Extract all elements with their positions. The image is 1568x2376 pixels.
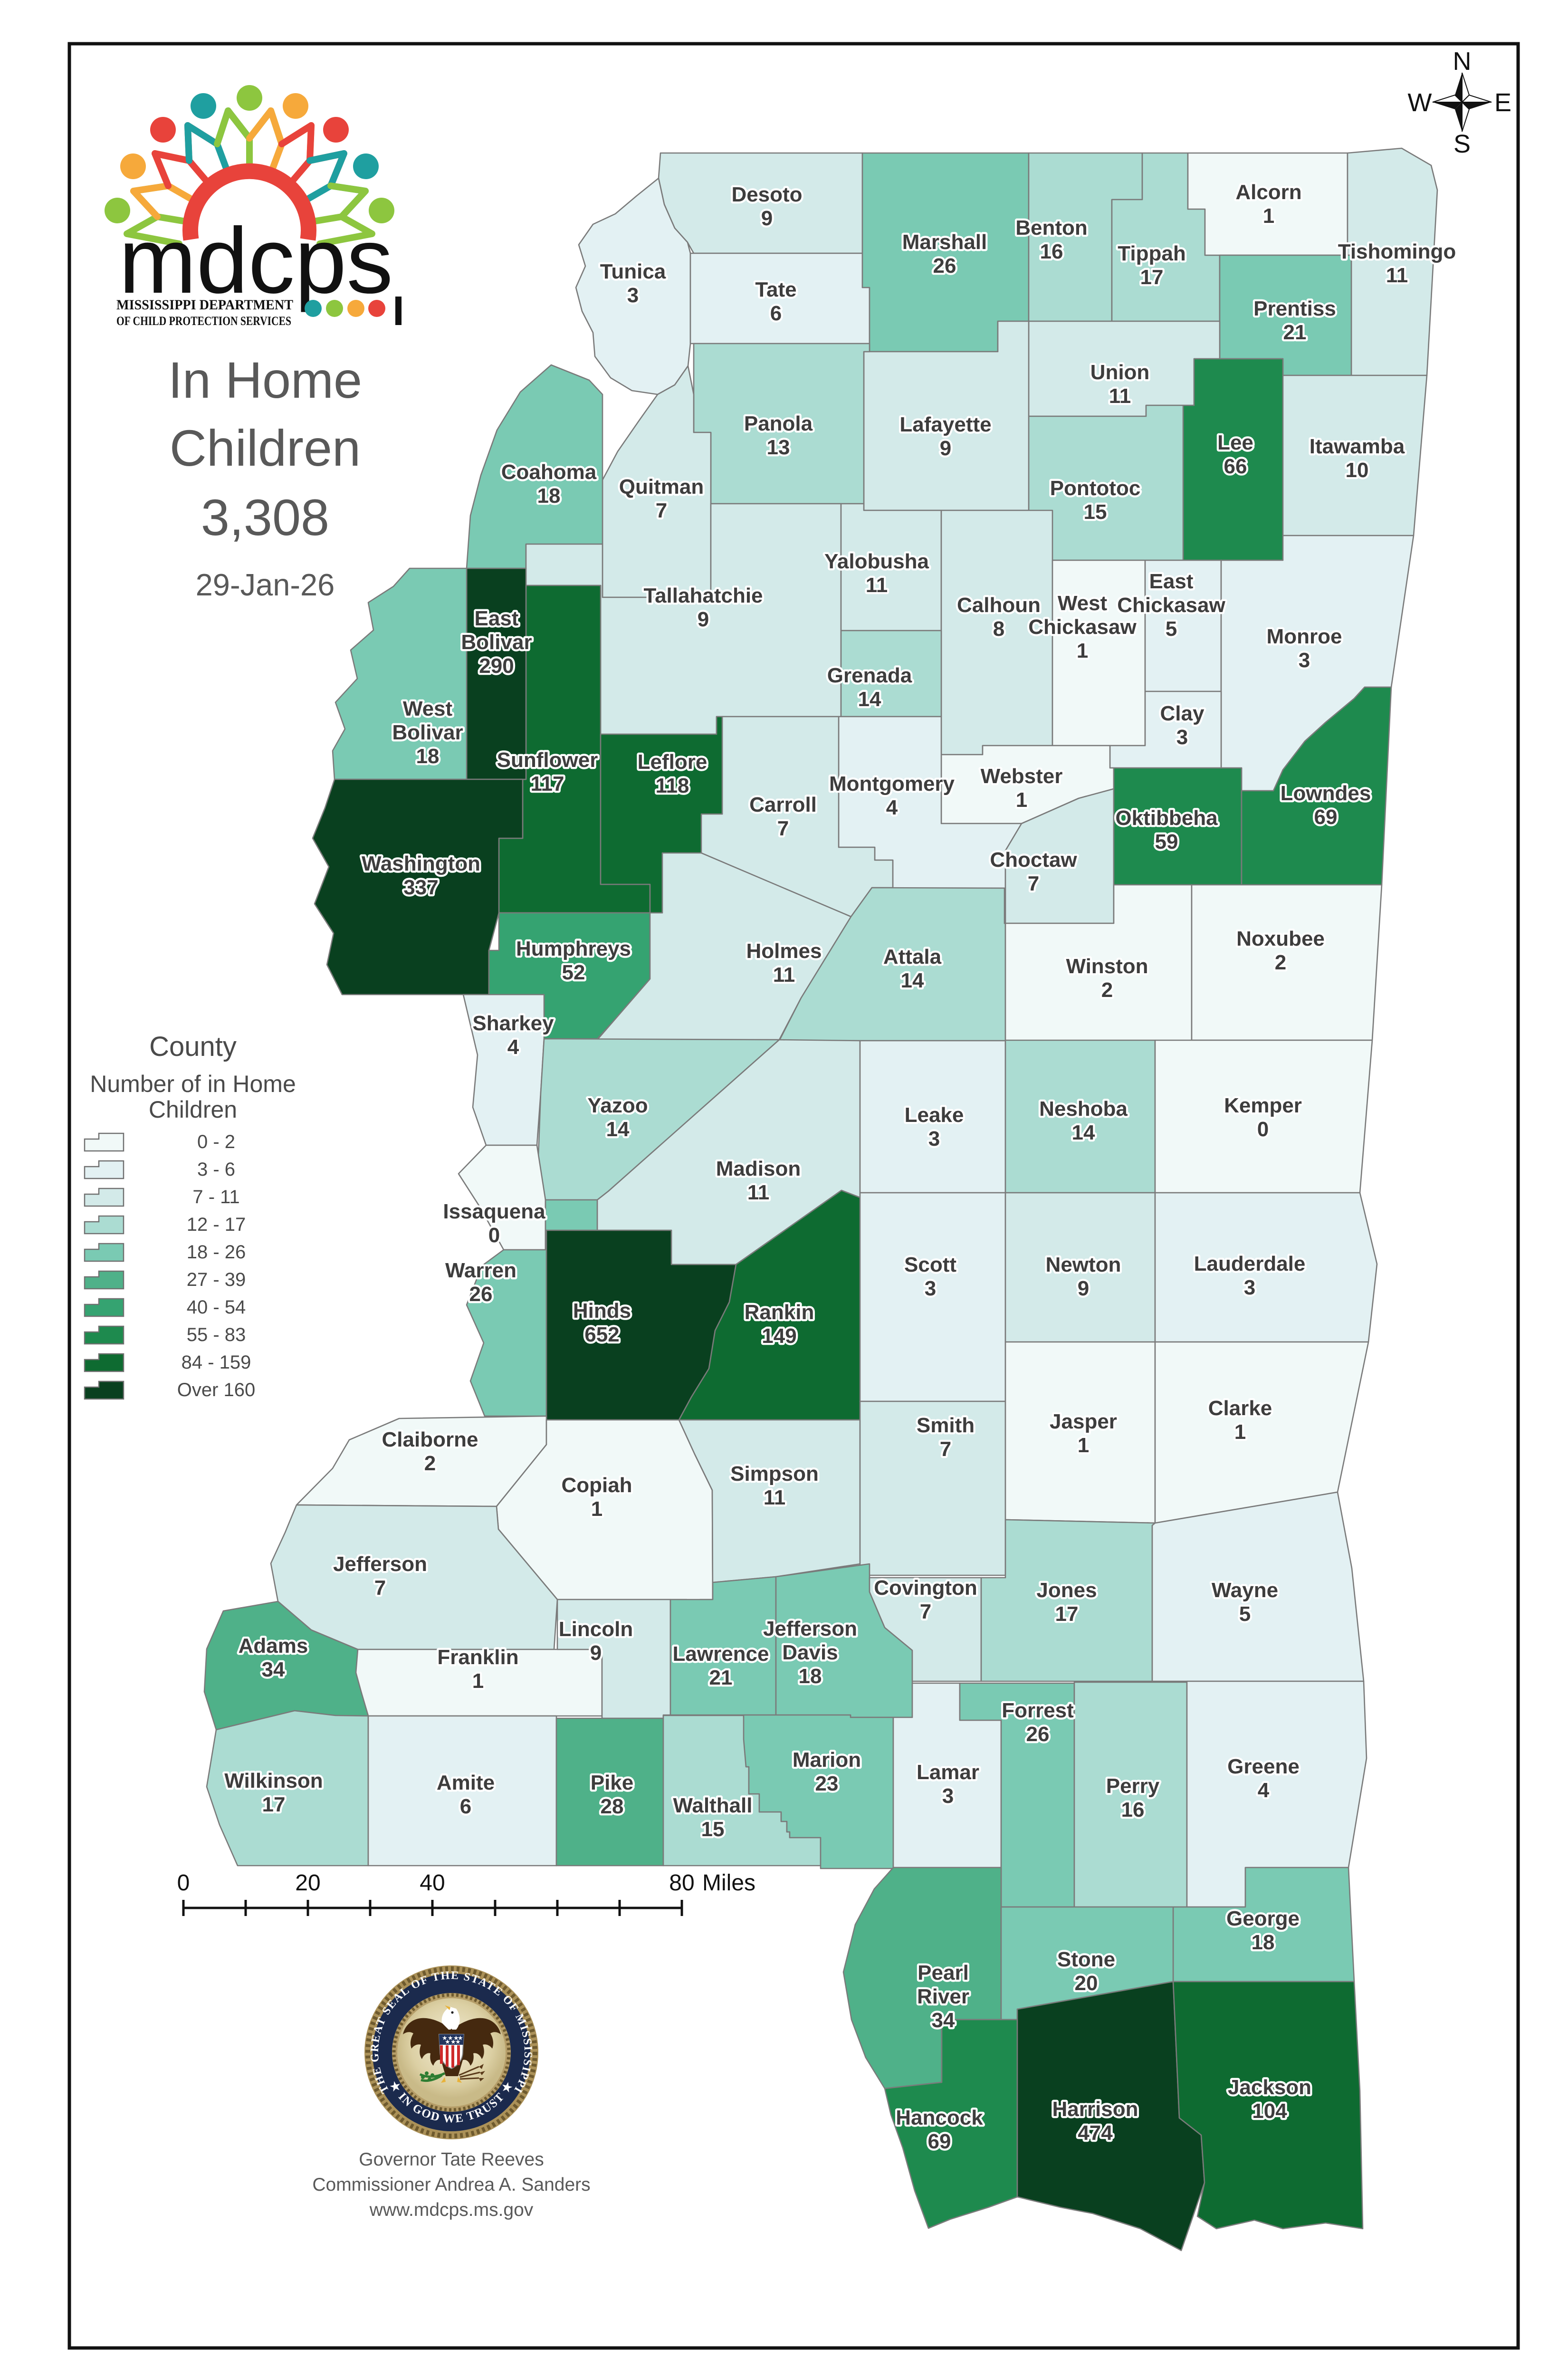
svg-text:Humphreys: Humphreys [516, 937, 631, 960]
svg-text:E: E [1494, 88, 1511, 117]
svg-text:4: 4 [507, 1035, 519, 1059]
svg-text:28: 28 [601, 1795, 624, 1818]
svg-text:18: 18 [416, 745, 440, 768]
svg-text:3: 3 [1299, 649, 1310, 672]
svg-text:Neshoba: Neshoba [1039, 1097, 1128, 1121]
svg-text:Simpson: Simpson [730, 1462, 819, 1485]
svg-text:Lee: Lee [1217, 431, 1253, 454]
svg-text:Covington: Covington [874, 1576, 977, 1600]
svg-text:Alcorn: Alcorn [1235, 181, 1301, 204]
svg-text:18: 18 [537, 484, 561, 508]
svg-text:17: 17 [1140, 266, 1164, 289]
svg-text:Madison: Madison [716, 1157, 801, 1180]
svg-text:Stone: Stone [1057, 1948, 1115, 1971]
svg-text:County: County [149, 1031, 237, 1062]
svg-text:Chickasaw: Chickasaw [1117, 594, 1225, 617]
svg-text:117: 117 [531, 772, 564, 795]
svg-text:Marshall: Marshall [902, 230, 987, 254]
svg-text:West: West [403, 697, 453, 720]
svg-text:3: 3 [1176, 726, 1188, 749]
svg-text:Grenada: Grenada [827, 664, 912, 687]
svg-text:Pontotoc: Pontotoc [1050, 477, 1141, 500]
svg-text:21: 21 [709, 1666, 733, 1689]
svg-text:OF CHILD PROTECTION SERVICES: OF CHILD PROTECTION SERVICES [116, 314, 291, 328]
svg-text:Tishomingo: Tishomingo [1338, 240, 1456, 263]
svg-text:Rankin: Rankin [745, 1301, 814, 1324]
svg-text:Clay: Clay [1160, 702, 1205, 725]
svg-text:Pearl: Pearl [918, 1961, 969, 1984]
svg-text:Jasper: Jasper [1050, 1410, 1117, 1433]
svg-text:1: 1 [1234, 1420, 1246, 1444]
svg-text:11: 11 [1386, 264, 1408, 287]
svg-text:5: 5 [1239, 1602, 1251, 1626]
svg-text:Forrest: Forrest [1002, 1699, 1074, 1722]
svg-text:Wayne: Wayne [1212, 1579, 1278, 1602]
svg-text:Benton: Benton [1015, 216, 1088, 240]
svg-text:11: 11 [866, 574, 888, 597]
svg-text:Issaquena: Issaquena [443, 1200, 545, 1223]
svg-text:1: 1 [1263, 204, 1274, 228]
svg-text:Bolivar: Bolivar [392, 721, 463, 744]
svg-text:11: 11 [773, 963, 795, 987]
svg-text:1: 1 [1078, 1434, 1089, 1457]
svg-text:Choctaw: Choctaw [990, 848, 1077, 872]
svg-text:Hancock: Hancock [896, 2106, 983, 2129]
svg-text:www.mdcps.ms.gov: www.mdcps.ms.gov [369, 2200, 534, 2220]
svg-text:East: East [475, 607, 519, 630]
svg-text:Clarke: Clarke [1208, 1397, 1272, 1420]
svg-text:69: 69 [1314, 805, 1338, 829]
svg-text:2: 2 [1101, 978, 1113, 1002]
svg-text:Washington: Washington [362, 852, 480, 875]
svg-text:Children: Children [149, 1096, 237, 1123]
svg-text:3: 3 [1244, 1276, 1255, 1299]
svg-text:80: 80 [669, 1870, 694, 1896]
svg-text:18 - 26: 18 - 26 [187, 1242, 246, 1263]
svg-text:Oktibbeha: Oktibbeha [1115, 806, 1218, 830]
svg-text:Lowndes: Lowndes [1281, 782, 1371, 805]
svg-text:26: 26 [933, 254, 956, 278]
svg-text:Carroll: Carroll [749, 793, 817, 816]
svg-text:8: 8 [993, 617, 1004, 641]
svg-text:7: 7 [920, 1600, 931, 1623]
svg-text:0: 0 [488, 1224, 500, 1247]
svg-text:11: 11 [747, 1181, 770, 1204]
svg-text:6: 6 [770, 302, 782, 325]
svg-text:23: 23 [815, 1772, 839, 1795]
svg-text:15: 15 [1084, 500, 1107, 524]
svg-text:Lawrence: Lawrence [673, 1642, 769, 1666]
svg-text:337: 337 [403, 876, 438, 899]
svg-text:11: 11 [764, 1486, 786, 1509]
svg-text:26: 26 [469, 1283, 493, 1306]
svg-text:Jackson: Jackson [1228, 2076, 1311, 2099]
svg-text:10: 10 [1346, 459, 1369, 482]
svg-text:Montgomery: Montgomery [829, 772, 955, 795]
svg-text:Chickasaw: Chickasaw [1028, 615, 1137, 639]
svg-text:Noxubee: Noxubee [1236, 927, 1325, 950]
svg-text:3: 3 [928, 1127, 940, 1150]
svg-text:Franklin: Franklin [437, 1646, 518, 1669]
svg-text:15: 15 [701, 1818, 725, 1841]
svg-text:26: 26 [1026, 1723, 1050, 1746]
svg-text:66: 66 [1224, 455, 1247, 478]
svg-text:9: 9 [761, 207, 773, 230]
svg-text:Amite: Amite [437, 1771, 495, 1794]
svg-text:Monroe: Monroe [1267, 625, 1342, 648]
svg-text:Quitman: Quitman [619, 475, 704, 498]
svg-text:9: 9 [698, 608, 709, 631]
svg-text:Claiborne: Claiborne [382, 1428, 478, 1451]
svg-text:2: 2 [424, 1452, 436, 1475]
svg-text:W: W [1408, 88, 1432, 117]
svg-text:20: 20 [295, 1870, 320, 1896]
svg-text:9: 9 [590, 1641, 602, 1665]
svg-text:Jefferson: Jefferson [333, 1552, 427, 1576]
svg-text:59: 59 [1155, 830, 1178, 853]
svg-text:Holmes: Holmes [746, 939, 822, 963]
svg-text:Attala: Attala [883, 945, 942, 968]
svg-text:9: 9 [940, 437, 951, 460]
svg-text:Number of in Home: Number of in Home [90, 1071, 296, 1097]
svg-text:2: 2 [1275, 951, 1286, 974]
svg-text:Pike: Pike [591, 1771, 634, 1794]
svg-text:Davis: Davis [782, 1641, 838, 1664]
svg-text:149: 149 [762, 1324, 796, 1348]
svg-text:★: ★ [445, 2038, 450, 2045]
svg-text:Governor Tate Reeves: Governor Tate Reeves [359, 2149, 544, 2170]
svg-text:East: East [1149, 570, 1194, 593]
svg-text:Copiah: Copiah [561, 1474, 632, 1497]
svg-text:Wilkinson: Wilkinson [224, 1769, 323, 1792]
svg-text:40 - 54: 40 - 54 [187, 1297, 246, 1318]
svg-text:9: 9 [1078, 1277, 1089, 1300]
svg-text:Greene: Greene [1227, 1755, 1300, 1778]
svg-text:Miles: Miles [702, 1870, 755, 1896]
svg-text:3 - 6: 3 - 6 [197, 1159, 235, 1180]
svg-text:Yalobusha: Yalobusha [824, 550, 929, 573]
svg-text:18: 18 [1252, 1931, 1275, 1954]
svg-text:1: 1 [591, 1497, 602, 1521]
svg-text:0: 0 [177, 1870, 190, 1896]
svg-text:Tallahatchie: Tallahatchie [643, 584, 763, 607]
svg-text:Scott: Scott [904, 1253, 956, 1276]
svg-text:18: 18 [799, 1665, 822, 1688]
svg-text:Hinds: Hinds [573, 1299, 631, 1322]
svg-text:34: 34 [262, 1658, 285, 1681]
svg-text:Harrison: Harrison [1052, 2098, 1138, 2121]
svg-text:69: 69 [928, 2130, 951, 2153]
svg-text:7: 7 [374, 1576, 386, 1600]
svg-text:52: 52 [562, 961, 585, 984]
svg-text:George: George [1226, 1907, 1300, 1930]
svg-text:Calhoun: Calhoun [957, 594, 1041, 617]
svg-text:N: N [1453, 47, 1472, 76]
svg-text:Marion: Marion [793, 1748, 861, 1772]
svg-text:Jones: Jones [1036, 1579, 1097, 1602]
svg-text:55 - 83: 55 - 83 [187, 1324, 246, 1345]
svg-text:7: 7 [777, 817, 789, 840]
svg-text:Lincoln: Lincoln [559, 1618, 633, 1641]
svg-text:1: 1 [1077, 639, 1088, 662]
svg-text:14: 14 [606, 1118, 630, 1141]
svg-text:Sunflower: Sunflower [497, 748, 598, 772]
svg-text:Leflore: Leflore [638, 750, 708, 774]
svg-text:290: 290 [479, 654, 514, 678]
svg-text:6: 6 [460, 1795, 471, 1818]
svg-text:652: 652 [584, 1323, 619, 1346]
svg-text:20: 20 [1075, 1972, 1098, 1995]
svg-text:Lauderdale: Lauderdale [1194, 1252, 1306, 1275]
svg-text:Newton: Newton [1046, 1253, 1121, 1276]
svg-text:3,308: 3,308 [201, 489, 329, 546]
svg-text:Coahoma: Coahoma [501, 460, 597, 484]
svg-text:Jefferson: Jefferson [763, 1617, 857, 1640]
svg-text:3: 3 [925, 1277, 936, 1300]
svg-text:Kemper: Kemper [1224, 1094, 1302, 1117]
svg-text:17: 17 [262, 1793, 286, 1816]
svg-text:0 - 2: 0 - 2 [197, 1131, 235, 1152]
svg-text:1: 1 [1016, 788, 1027, 812]
svg-text:Over 160: Over 160 [177, 1380, 256, 1400]
svg-text:Children: Children [170, 419, 361, 477]
svg-text:Tate: Tate [755, 278, 796, 301]
svg-text:12 - 17: 12 - 17 [187, 1214, 246, 1235]
svg-text:Tunica: Tunica [600, 260, 666, 283]
svg-text:River: River [917, 1985, 969, 2008]
svg-text:Lafayette: Lafayette [899, 413, 991, 436]
svg-text:4: 4 [886, 796, 898, 819]
svg-text:Panola: Panola [744, 412, 813, 435]
svg-text:Tippah: Tippah [1118, 242, 1186, 265]
svg-text:84 - 159: 84 - 159 [182, 1352, 251, 1373]
svg-text:Prentiss: Prentiss [1253, 297, 1336, 320]
svg-text:474: 474 [1078, 2121, 1113, 2145]
svg-text:13: 13 [767, 436, 790, 459]
svg-text:16: 16 [1121, 1798, 1145, 1821]
svg-text:Itawamba: Itawamba [1310, 435, 1405, 458]
svg-text:West: West [1058, 592, 1108, 615]
svg-text:14: 14 [1072, 1121, 1095, 1144]
svg-text:Bolivar: Bolivar [461, 631, 532, 654]
svg-text:MISSISSIPPI DEPARTMENT: MISSISSIPPI DEPARTMENT [116, 297, 293, 313]
svg-text:34: 34 [932, 2009, 955, 2032]
svg-text:7: 7 [940, 1437, 951, 1461]
svg-text:3: 3 [627, 284, 639, 307]
svg-text:118: 118 [656, 774, 689, 797]
svg-text:14: 14 [858, 688, 881, 711]
svg-text:Union: Union [1090, 361, 1150, 384]
svg-text:In Home: In Home [168, 351, 362, 409]
svg-text:S: S [1453, 130, 1471, 158]
svg-text:Lamar: Lamar [917, 1761, 979, 1784]
svg-text:Yazoo: Yazoo [587, 1094, 648, 1117]
svg-text:Perry: Perry [1106, 1774, 1160, 1798]
svg-text:29-Jan-26: 29-Jan-26 [196, 567, 335, 602]
svg-text:40: 40 [420, 1870, 445, 1896]
svg-text:Webster: Webster [981, 765, 1063, 788]
svg-text:Leake: Leake [905, 1103, 964, 1127]
svg-text:★: ★ [455, 2038, 461, 2045]
svg-text:Winston: Winston [1066, 955, 1148, 978]
svg-text:1: 1 [472, 1669, 484, 1693]
svg-text:Walthall: Walthall [673, 1794, 752, 1817]
svg-text:16: 16 [1040, 240, 1063, 263]
svg-text:17: 17 [1055, 1602, 1079, 1626]
svg-text:7: 7 [656, 499, 667, 522]
svg-text:7: 7 [1028, 872, 1039, 895]
svg-text:11: 11 [1109, 384, 1131, 408]
svg-text:104: 104 [1252, 2099, 1287, 2123]
svg-text:Sharkey: Sharkey [472, 1012, 554, 1035]
svg-text:Desoto: Desoto [731, 183, 802, 206]
svg-text:7 - 11: 7 - 11 [192, 1187, 239, 1207]
svg-text:0: 0 [1257, 1118, 1269, 1141]
svg-text:Adams: Adams [239, 1634, 308, 1657]
svg-text:5: 5 [1166, 617, 1177, 641]
svg-text:27 - 39: 27 - 39 [187, 1269, 246, 1290]
svg-text:Commissioner Andrea A. Sanders: Commissioner Andrea A. Sanders [312, 2175, 590, 2195]
svg-text:14: 14 [901, 969, 924, 992]
svg-text:Smith: Smith [917, 1414, 975, 1437]
svg-text:3: 3 [942, 1784, 954, 1808]
svg-text:21: 21 [1283, 321, 1307, 344]
svg-text:Warren: Warren [445, 1259, 516, 1282]
svg-text:4: 4 [1258, 1779, 1270, 1802]
